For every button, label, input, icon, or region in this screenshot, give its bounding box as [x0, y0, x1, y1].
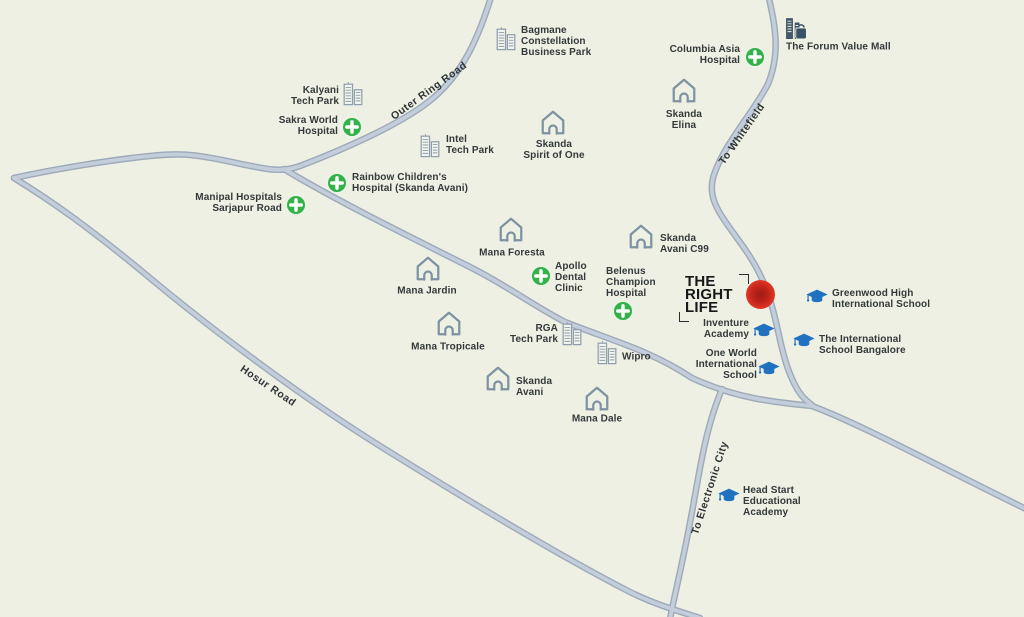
poi-label: IntelTech Park	[446, 135, 494, 157]
hospital-cross-icon	[530, 265, 553, 288]
poi-label-line: School	[696, 370, 757, 381]
hospital-cross-icon	[326, 172, 349, 195]
graduation-cap-icon	[753, 323, 776, 340]
hospital-cross-icon	[744, 46, 767, 69]
poi-label: Greenwood HighInternational School	[832, 289, 930, 311]
poi-label-line: Tech Park	[446, 146, 494, 157]
office-buildings-icon	[597, 339, 618, 365]
poi-label: ApolloDentalClinic	[555, 262, 587, 294]
poi-label-line: School Bangalore	[819, 346, 906, 357]
logo-corner-bracket-icon	[679, 312, 689, 322]
poi-label-line: Clinic	[555, 283, 587, 294]
poi-label-line: Spirit of One	[523, 151, 584, 162]
poi-label-line: Sarjapur Road	[195, 204, 282, 215]
poi-label-line: Hospital	[279, 127, 338, 138]
poi-label: Wipro	[622, 353, 651, 364]
poi-label: The InternationalSchool Bangalore	[819, 335, 906, 357]
poi-label-line: Academy	[743, 507, 801, 518]
poi-label: Columbia AsiaHospital	[670, 45, 740, 67]
project-logo-line: LIFE	[685, 302, 733, 315]
poi-label-line: International School	[832, 300, 930, 311]
poi-label-line: The Forum Value Mall	[786, 43, 891, 54]
poi-label-line: Hospital (Skanda Avani)	[352, 184, 468, 195]
poi-label: BagmaneConstellationBusiness Park	[521, 26, 591, 58]
house-icon	[483, 364, 513, 392]
shopping-mall-icon	[783, 16, 809, 42]
poi-label: Mana Tropicale	[411, 343, 485, 354]
poi-label-line: Champion	[606, 278, 656, 289]
poi-label: Rainbow Children'sHospital (Skanda Avani…	[352, 173, 468, 195]
poi-label-line: Hospital	[670, 56, 740, 67]
office-buildings-icon	[343, 80, 364, 106]
project-location-dot-icon	[746, 280, 775, 309]
poi-label: InventureAcademy	[703, 319, 749, 341]
poi-label: SkandaAvani	[516, 377, 552, 399]
poi-label: SkandaSpirit of One	[523, 140, 584, 162]
graduation-cap-icon	[718, 488, 741, 505]
poi-label: RGATech Park	[510, 324, 558, 346]
office-buildings-icon	[562, 320, 583, 346]
house-icon	[496, 215, 526, 243]
poi-label-line: Hospital	[606, 288, 656, 299]
poi-label-line: Elina	[666, 121, 702, 132]
poi-label: KalyaniTech Park	[291, 86, 339, 108]
poi-label: One WorldInternationalSchool	[696, 349, 757, 381]
poi-label: Head StartEducationalAcademy	[743, 486, 801, 518]
poi-label-line: International	[696, 360, 757, 371]
poi-label: Manipal HospitalsSarjapur Road	[195, 193, 282, 215]
poi-label: The Forum Value Mall	[786, 43, 891, 54]
poi-label: SkandaElina	[666, 110, 702, 132]
hospital-cross-icon	[341, 116, 364, 139]
poi-label-line: Academy	[703, 330, 749, 341]
house-icon	[626, 222, 656, 250]
office-buildings-icon	[420, 132, 441, 158]
map-canvas: Outer Ring RoadTo WhitefieldHosur RoadTo…	[0, 0, 1024, 617]
poi-label-line: Tech Park	[510, 335, 558, 346]
house-icon	[413, 254, 443, 282]
poi-label-line: Dental	[555, 273, 587, 284]
poi-label-line: Avani	[516, 388, 552, 399]
poi-label-line: Business Park	[521, 47, 591, 58]
poi-label-line: Educational	[743, 497, 801, 508]
poi-label-line: Mana Foresta	[479, 249, 545, 260]
poi-label-line: Wipro	[622, 353, 651, 364]
hospital-cross-icon	[285, 194, 308, 217]
poi-label: Mana Foresta	[479, 249, 545, 260]
poi-label: Mana Dale	[572, 415, 622, 426]
house-icon	[538, 108, 568, 136]
location-map-page: { "map": { "colors": { "background": "#e…	[0, 0, 1024, 617]
graduation-cap-icon	[793, 333, 816, 350]
poi-label-line: Mana Dale	[572, 415, 622, 426]
poi-label-line: Avani C99	[660, 245, 709, 256]
house-icon	[669, 76, 699, 104]
hospital-cross-icon	[612, 300, 635, 323]
poi-label: Mana Jardin	[397, 287, 456, 298]
project-logo: THE RIGHT LIFE	[685, 276, 733, 315]
house-icon	[434, 309, 464, 337]
office-buildings-icon	[496, 25, 517, 51]
poi-label-line: Constellation	[521, 37, 591, 48]
poi-label-line: Mana Tropicale	[411, 343, 485, 354]
house-icon	[582, 384, 612, 412]
poi-label: Sakra WorldHospital	[279, 116, 338, 138]
logo-corner-bracket-icon	[739, 274, 749, 284]
poi-label-line: Mana Jardin	[397, 287, 456, 298]
graduation-cap-icon	[758, 361, 781, 378]
graduation-cap-icon	[806, 289, 829, 306]
poi-label-line: Tech Park	[291, 97, 339, 108]
poi-label: SkandaAvani C99	[660, 234, 709, 256]
poi-label: BelenusChampionHospital	[606, 267, 656, 299]
